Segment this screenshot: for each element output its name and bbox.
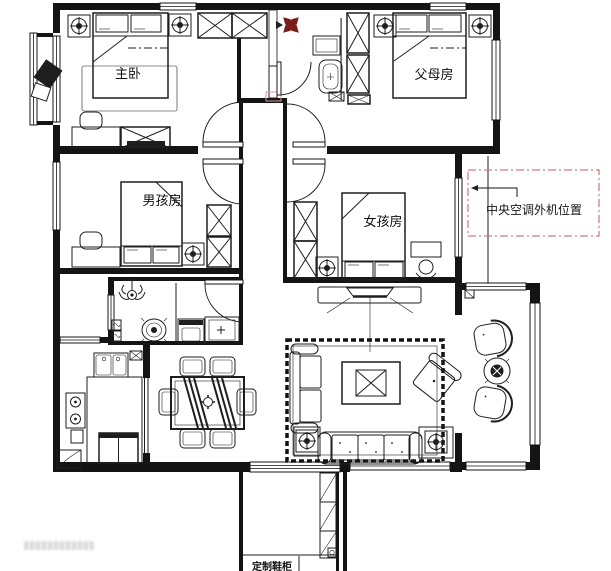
- room-label-boys: 男孩房: [142, 193, 181, 208]
- dining-chair: [210, 357, 235, 376]
- door-bathroom: [205, 280, 243, 322]
- desk: [72, 232, 120, 267]
- boys-room: 男孩房: [72, 182, 231, 267]
- window: [466, 283, 526, 290]
- door-boys: [203, 159, 243, 204]
- parents-room: 父母房: [347, 13, 491, 104]
- window: [466, 462, 526, 470]
- drain-icon: [465, 290, 474, 298]
- coffee-table: [342, 362, 400, 404]
- dressing-table: [411, 242, 441, 278]
- washing-machine: [178, 319, 204, 343]
- entry-cabinet: [313, 36, 340, 55]
- chandelier-icon: [119, 280, 145, 300]
- wardrobe-icon: [347, 13, 370, 104]
- east-balcony: [465, 290, 515, 424]
- door-master: [203, 102, 243, 147]
- leader-line: [477, 188, 517, 197]
- window: [53, 162, 60, 230]
- floor-plan-drawing: 主卧: [0, 0, 611, 571]
- girls-room: 女孩房: [294, 193, 441, 280]
- living-room: [287, 287, 463, 464]
- door-hall: [287, 104, 325, 147]
- storage-cabinet: [320, 473, 336, 558]
- ceiling-light-icon: [316, 257, 338, 279]
- wardrobe-icon: [207, 205, 231, 267]
- window: [455, 178, 462, 257]
- loveseat: [290, 344, 321, 433]
- window: [530, 303, 540, 445]
- desk: [72, 112, 120, 148]
- floor-plan: 主卧: [0, 0, 611, 571]
- window: [430, 3, 466, 10]
- ac-annotation-label: 中央空调外机位置: [486, 202, 582, 217]
- walls: [30, 3, 540, 571]
- ceiling-light-icon: [68, 15, 90, 37]
- rug: [287, 340, 443, 461]
- tv: [327, 288, 413, 352]
- room-label-parents: 父母房: [414, 67, 453, 82]
- cabinet: [71, 430, 83, 443]
- sofa: [318, 432, 422, 464]
- wardrobe-icon: [294, 202, 317, 278]
- stove: [66, 393, 85, 428]
- window: [492, 40, 500, 120]
- armchair: [410, 351, 463, 404]
- cabinet-label: 定制鞋柜: [252, 560, 292, 571]
- dining-chair: [180, 429, 205, 448]
- door-girls: [287, 159, 325, 202]
- dining-chair: [180, 357, 205, 376]
- drain-icon: [130, 351, 142, 360]
- dining-table: [171, 377, 244, 429]
- room-label-master: 主卧: [115, 66, 141, 81]
- window: [350, 462, 450, 470]
- dining-area: [145, 357, 257, 453]
- arrow-marker: [276, 21, 283, 29]
- wardrobe-icon: [198, 13, 267, 38]
- rattan-chair: [472, 382, 515, 424]
- room-label-girls: 女孩房: [363, 214, 402, 229]
- entry: [275, 9, 344, 101]
- counter: [87, 377, 142, 463]
- parents-bed: [393, 13, 466, 98]
- south-balcony: 定制鞋柜: [243, 473, 336, 571]
- window: [30, 33, 37, 125]
- bathroom: [112, 280, 239, 343]
- master-bed: [93, 13, 168, 98]
- kitchen: [57, 351, 142, 468]
- girls-bed: [342, 193, 405, 280]
- ceiling-light-icon: [469, 15, 491, 37]
- leader-arrow-icon: [471, 185, 478, 191]
- window: [60, 337, 100, 343]
- rattan-chair: [472, 318, 515, 360]
- door-entry: [277, 62, 311, 95]
- fridge: [99, 433, 138, 463]
- sliding-door: [145, 378, 149, 453]
- dresser-icon: [121, 127, 170, 148]
- dining-chair: [210, 429, 235, 448]
- ceiling-light-icon: [169, 14, 191, 36]
- sink: [94, 353, 128, 377]
- window: [160, 3, 196, 10]
- watermark: [24, 541, 94, 550]
- ceiling-light-icon: [182, 243, 204, 265]
- basin: [141, 318, 167, 342]
- round-table: [484, 358, 510, 384]
- toilet: [319, 60, 342, 93]
